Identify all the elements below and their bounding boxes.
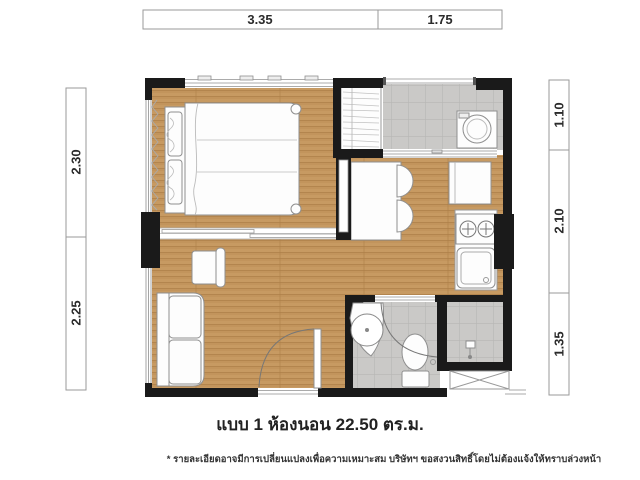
wardrobe — [341, 86, 381, 152]
balcony-railing — [383, 77, 476, 85]
pillow — [168, 112, 182, 156]
floor-plan-canvas: 3.35 1.75 2.30 2.25 1.10 2.10 1.35 — [0, 0, 640, 480]
kitchen-sink — [457, 248, 495, 288]
washing-machine — [457, 111, 497, 148]
bed-post — [291, 104, 301, 114]
dim-right-bottom: 1.35 — [552, 331, 567, 356]
dim-top-left: 3.35 — [247, 12, 272, 27]
bedroom-top-window — [183, 76, 333, 88]
dim-left-bottom: 2.25 — [69, 300, 84, 325]
plan-disclaimer: * รายละเอียดอาจมีการเปลี่ยนแปลงเพื่อความ… — [167, 451, 601, 465]
dimension-bar-right: 1.10 2.10 1.35 — [549, 80, 569, 395]
bed-post — [291, 204, 301, 214]
dining-table — [351, 162, 401, 240]
wall-column — [141, 212, 160, 268]
kitchen-counter — [455, 210, 497, 290]
refrigerator — [449, 162, 491, 204]
entrance-threshold — [258, 388, 318, 397]
bed — [165, 103, 301, 215]
dining-set — [351, 162, 413, 240]
bathroom-doorway — [375, 295, 437, 302]
dim-right-top: 1.10 — [552, 102, 567, 127]
dim-right-middle: 2.10 — [552, 208, 567, 233]
bedroom-left-window — [144, 98, 152, 212]
dimension-bar-top: 3.35 1.75 — [143, 10, 502, 29]
dim-left-top: 2.30 — [69, 149, 84, 174]
shower-floor — [447, 302, 503, 364]
entrance-door-leaf — [314, 329, 321, 388]
living-left-window — [144, 268, 152, 383]
wall-column — [494, 214, 514, 269]
bedroom-partition-sliding-door — [158, 228, 340, 239]
floorplan-page: 3.35 1.75 2.30 2.25 1.10 2.10 1.35 — [0, 0, 640, 480]
mattress — [185, 103, 299, 215]
sofa — [157, 293, 204, 386]
balcony-sliding-door — [383, 149, 497, 158]
dim-top-right: 1.75 — [427, 12, 452, 27]
ac-ledge — [450, 371, 526, 394]
pillow — [168, 160, 182, 204]
bedroom-pocket-door — [339, 160, 348, 232]
dimension-bar-left: 2.30 2.25 — [66, 88, 86, 390]
shower-divider-wall — [437, 300, 447, 364]
armchair — [192, 248, 225, 287]
plan-title: แบบ 1 ห้องนอน 22.50 ตร.ม. — [216, 415, 423, 434]
